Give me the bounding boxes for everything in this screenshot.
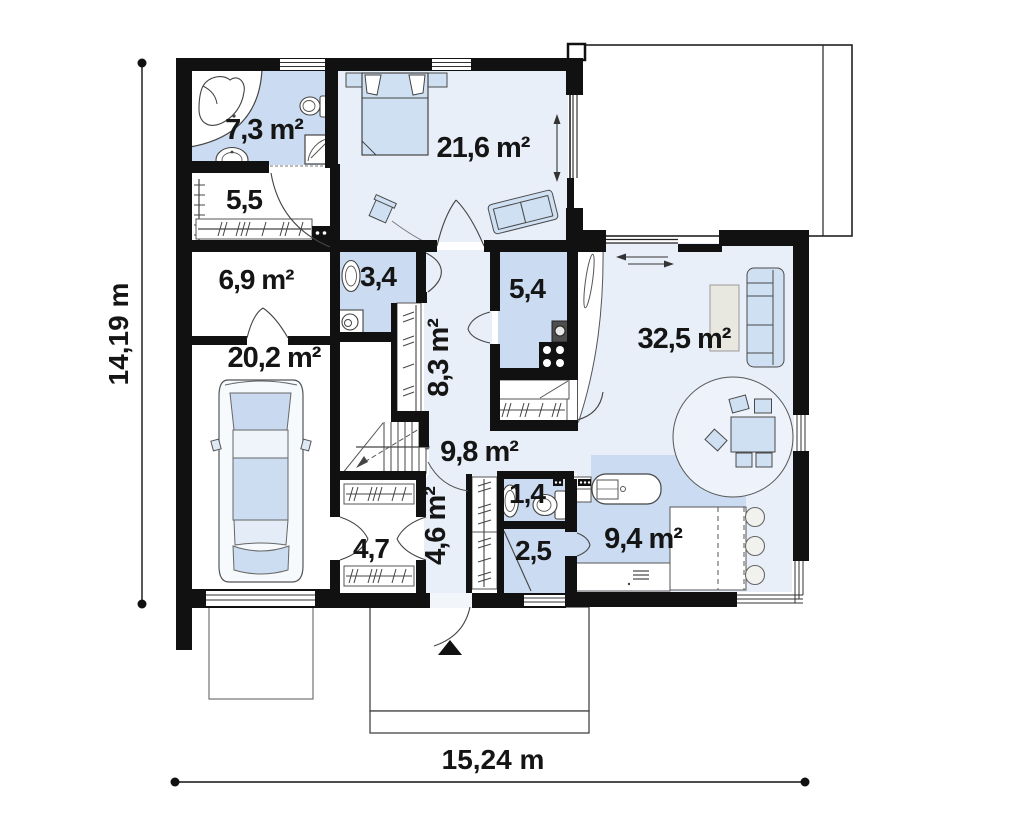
svg-text:14,19 m: 14,19 m	[103, 283, 134, 386]
svg-text:15,24 m: 15,24 m	[442, 744, 545, 775]
svg-text:8,3 m²: 8,3 m²	[423, 318, 455, 397]
svg-text:5,5: 5,5	[226, 184, 262, 215]
svg-text:4,6 m²: 4,6 m²	[420, 486, 452, 565]
svg-text:2,5: 2,5	[515, 535, 551, 566]
svg-text:9,8 m²: 9,8 m²	[440, 436, 519, 468]
svg-text:4,7: 4,7	[353, 533, 389, 564]
svg-text:1,4: 1,4	[509, 478, 546, 509]
svg-text:6,9 m²: 6,9 m²	[219, 264, 295, 295]
svg-text:20,2 m²: 20,2 m²	[228, 342, 322, 374]
svg-text:7,3 m²: 7,3 m²	[225, 114, 304, 146]
svg-text:32,5 m²: 32,5 m²	[638, 323, 732, 355]
svg-text:9,4 m²: 9,4 m²	[604, 523, 683, 555]
svg-text:21,6 m²: 21,6 m²	[437, 132, 531, 164]
svg-text:5,4: 5,4	[509, 273, 546, 304]
svg-text:3,4: 3,4	[360, 261, 397, 292]
